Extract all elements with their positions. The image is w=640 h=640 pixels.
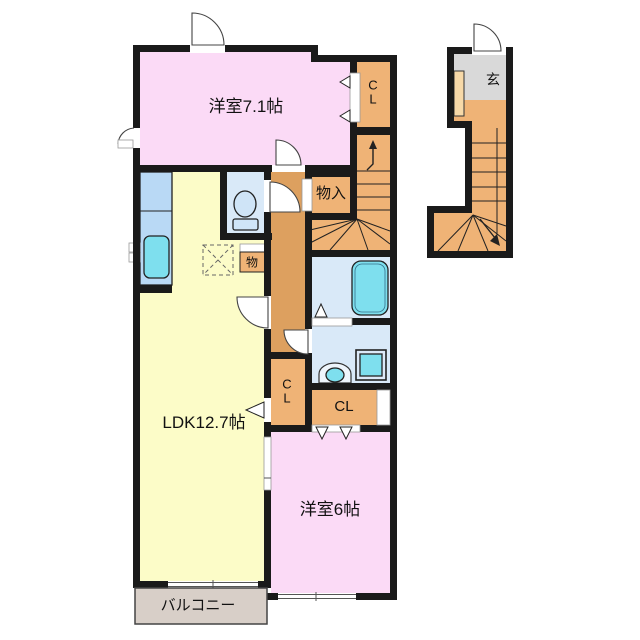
washbasin: [319, 363, 351, 383]
label-mono: 物: [246, 257, 258, 270]
label-cl-mid-vertical: C L: [282, 377, 291, 404]
floor-plan: 洋室7.1帖 C L 物入 物 LDK12.7帖 C L CL 洋室6帖 バルコ…: [0, 0, 640, 640]
kitchen-sink: [144, 236, 169, 278]
toilet: [233, 191, 258, 230]
door-opening: [272, 165, 305, 172]
label-room-6: 洋室6帖: [300, 501, 360, 519]
label-room-7-1: 洋室7.1帖: [209, 98, 284, 116]
door-opening: [264, 398, 271, 422]
label-balcony: バルコニー: [161, 598, 236, 614]
label-genkan: 玄: [486, 73, 500, 88]
monoire-door: [302, 179, 312, 211]
toilet-tank: [233, 219, 258, 230]
entrance-unit: [427, 24, 513, 258]
genkan-door-arc: [474, 24, 501, 51]
kitchen: [140, 172, 172, 285]
bathtub: [352, 261, 388, 315]
door-opening: [190, 45, 225, 53]
window-room6: [278, 592, 356, 601]
wall-recess: [377, 390, 390, 425]
floor-plan-drawing: [0, 0, 640, 640]
bathroom-sliding-door: [312, 318, 352, 326]
window-room71-left: [118, 128, 140, 148]
label-cl-top: C L: [368, 78, 377, 105]
entrance-door-arc: [192, 13, 224, 45]
washing-machine: [356, 350, 386, 380]
label-cl-mid: CL: [334, 399, 353, 415]
room6-sliding-door: [264, 437, 271, 490]
shoe-cabinet: [454, 71, 464, 116]
toilet-bowl: [234, 191, 256, 217]
label-ldk: LDK12.7帖: [162, 414, 245, 432]
label-monoire: 物入: [316, 186, 346, 202]
cl-top-doorway: [350, 73, 360, 122]
